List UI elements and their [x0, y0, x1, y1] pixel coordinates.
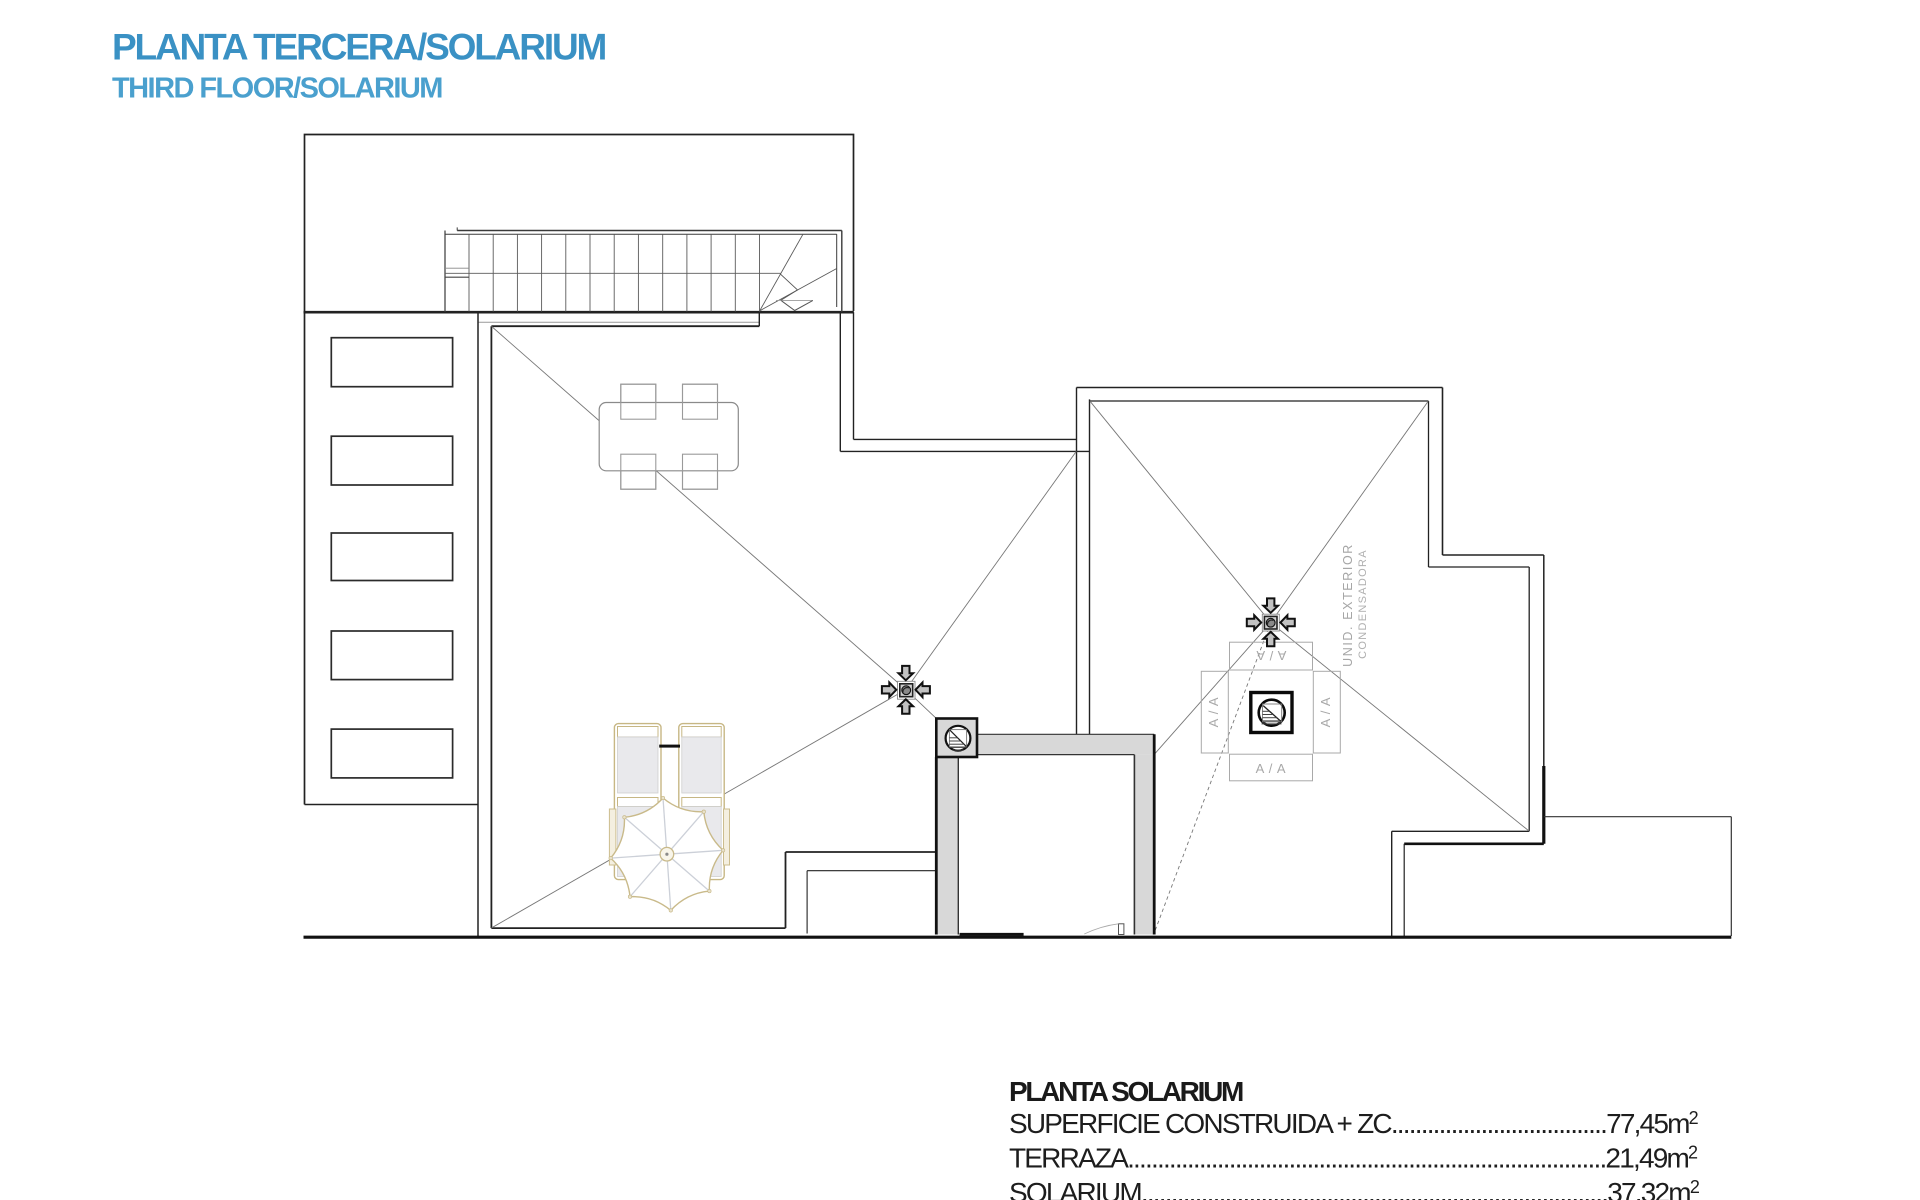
- svg-text:PLANTA TERCERA/SOLARIUM: PLANTA TERCERA/SOLARIUM: [112, 27, 606, 68]
- svg-text:THIRD FLOOR/SOLARIUM: THIRD FLOOR/SOLARIUM: [112, 73, 442, 105]
- svg-text:SOLARIUM......................: SOLARIUM................................…: [1009, 1177, 1700, 1200]
- svg-text:SUPERFICIE CONSTRUIDA + ZC....: SUPERFICIE CONSTRUIDA + ZC..............…: [1009, 1108, 1699, 1139]
- svg-text:A / A: A / A: [1256, 761, 1287, 776]
- svg-text:A / A: A / A: [1318, 697, 1333, 728]
- svg-text:A / A: A / A: [1206, 697, 1221, 728]
- svg-text:UNID. EXTERIOR: UNID. EXTERIOR: [1341, 543, 1355, 667]
- svg-text:TERRAZA.......................: TERRAZA.................................…: [1009, 1143, 1698, 1174]
- svg-text:A / A: A / A: [1256, 648, 1287, 663]
- svg-text:PLANTA SOLARIUM: PLANTA SOLARIUM: [1009, 1076, 1243, 1107]
- svg-text:CONDENSADORA: CONDENSADORA: [1357, 549, 1369, 659]
